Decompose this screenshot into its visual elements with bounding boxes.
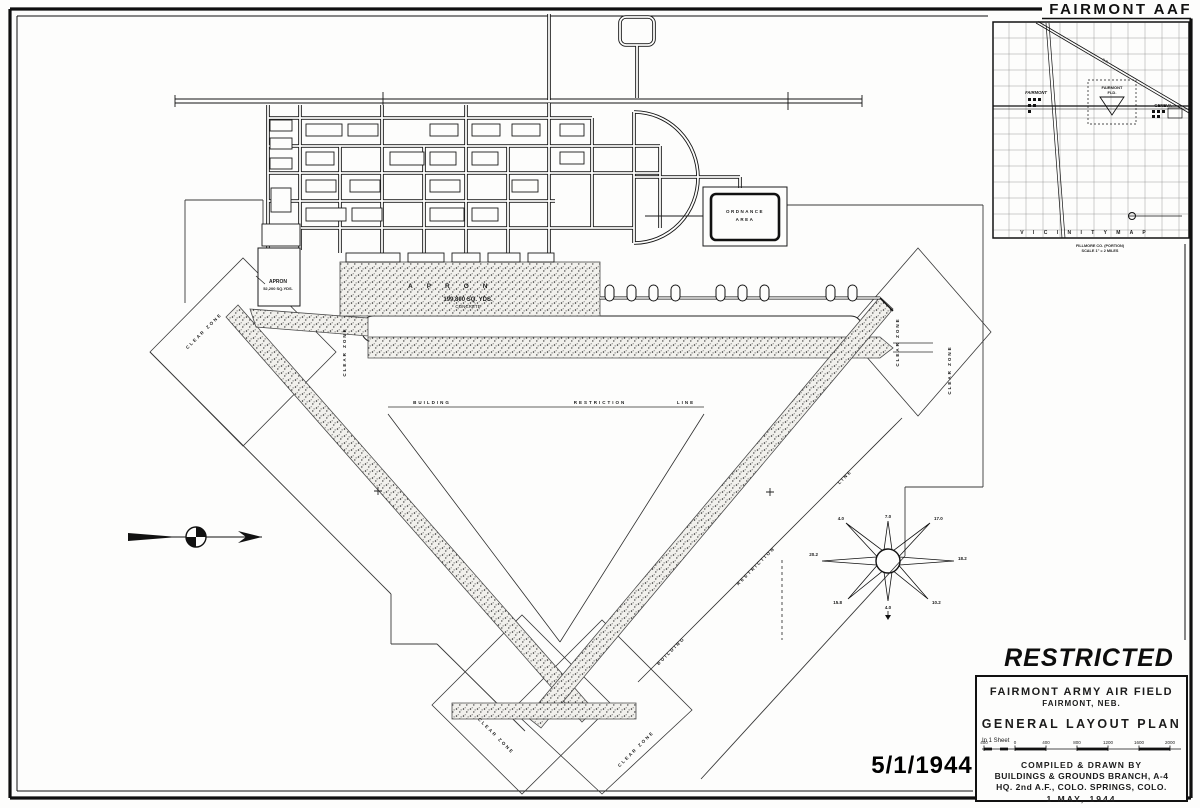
wind-s: 4.0 — [885, 605, 892, 610]
scale-tick-6: 2000 — [1165, 740, 1176, 745]
clear-zone-label-south-1: CLEAR ZONE — [477, 717, 515, 755]
vicinity-map: FAIRMONT FAIRMONT FLD. GENEVA R.R. V I C… — [993, 22, 1189, 254]
title-block: FAIRMONT ARMY AIR FIELD FAIRMONT, NEB. G… — [975, 675, 1188, 802]
scale-tick-4: 1200 — [1103, 740, 1114, 745]
ordnance-label-2: AREA — [736, 217, 755, 222]
scale-bar: 400 0 400 800 1200 1600 2000 — [979, 739, 1184, 753]
brl-word-restriction: RESTRICTION — [574, 400, 627, 405]
clear-zone-label-east-2: CLEAR ZONE — [947, 345, 952, 394]
vicinity-geneva-label: GENEVA — [1154, 103, 1171, 108]
restricted-stamp: RESTRICTED — [988, 644, 1190, 673]
wind-n: 7.0 — [885, 514, 892, 519]
credit-line-4: 1 MAY, 1944 — [977, 794, 1186, 804]
credit-line-2: BUILDINGS & GROUNDS BRANCH, A-4 — [977, 771, 1186, 781]
ordnance-label-1: ORDNANCE — [726, 209, 764, 214]
railroad-line — [175, 92, 862, 110]
clear-zone-label-taxiway: CLEAR ZONE — [342, 327, 347, 376]
sheet-note: In 1 Sheet — [982, 738, 1009, 744]
clear-zone-label-east-1: CLEAR ZONE — [895, 317, 900, 366]
credit-line-3: HQ. 2nd A.F., COLO. SPRINGS, COLO. — [977, 782, 1186, 792]
cantonment-roads — [268, 14, 740, 278]
wind-sw: 15.8 — [833, 600, 842, 605]
west-apron — [256, 248, 300, 306]
credit-line-1: COMPILED & DRAWN BY — [977, 760, 1186, 770]
runway-nw-se — [226, 305, 594, 722]
brl-diag-restriction: RESTRICTION — [736, 546, 777, 587]
brl-word-building: BUILDING — [413, 400, 451, 405]
title-block-plan-title: GENERAL LAYOUT PLAN — [977, 717, 1186, 731]
wind-w: 20.2 — [809, 552, 818, 557]
ordnance-area — [645, 187, 787, 246]
clear-zone-label-west: CLEAR ZONE — [185, 312, 223, 350]
wind-e: 18.2 — [958, 556, 967, 561]
scale-tick-1: 0 — [1014, 740, 1017, 745]
apron-label: APRON — [408, 283, 501, 290]
apron-area-label: 199,800 SQ. YDS. — [443, 297, 493, 303]
vicinity-caption: V I C I N I T Y M A P — [1020, 230, 1150, 236]
drawing-sheet: 7.0 17.0 18.2 10.2 4.0 15.8 20.2 4.0 ORD… — [0, 0, 1200, 808]
vicinity-town-label: FAIRMONT — [1025, 90, 1047, 95]
title-block-field-name: FAIRMONT ARMY AIR FIELD — [977, 686, 1186, 698]
wind-nw: 4.0 — [838, 516, 845, 521]
scale-tick-3: 800 — [1073, 740, 1081, 745]
brl-word-line: LINE — [677, 400, 695, 405]
building-restriction-lines — [388, 343, 933, 682]
title-block-location: FAIRMONT, NEB. — [977, 699, 1186, 708]
date-stamp: 5/1/1944 — [866, 752, 978, 780]
vicinity-map-title: FAIRMONT AAF — [1040, 1, 1192, 18]
vicinity-sub-2: SCALE 1" = 2 MILES — [1082, 249, 1119, 253]
north-arrow-icon — [128, 527, 262, 547]
hardstand-taxiline — [600, 285, 893, 311]
runway-ne-sw — [527, 297, 893, 728]
brl-diag-building: BUILDING — [656, 636, 686, 666]
wind-ne: 17.0 — [934, 516, 943, 521]
vicinity-field-label-2: FLD. — [1108, 90, 1117, 95]
runway-east-west — [368, 337, 893, 358]
scale-tick-5: 1600 — [1134, 740, 1145, 745]
wind-se: 10.2 — [932, 600, 941, 605]
scale-tick-2: 400 — [1042, 740, 1050, 745]
apron-surface-label: CONCRETE — [455, 304, 480, 309]
brl-diag-line: LINE — [837, 469, 853, 485]
vicinity-sub-1: FILLMORE CO. (PORTION) — [1076, 244, 1125, 248]
west-apron-label: APRON — [269, 279, 287, 285]
west-apron-area-label: 52,200 SQ.YDS. — [263, 286, 293, 291]
